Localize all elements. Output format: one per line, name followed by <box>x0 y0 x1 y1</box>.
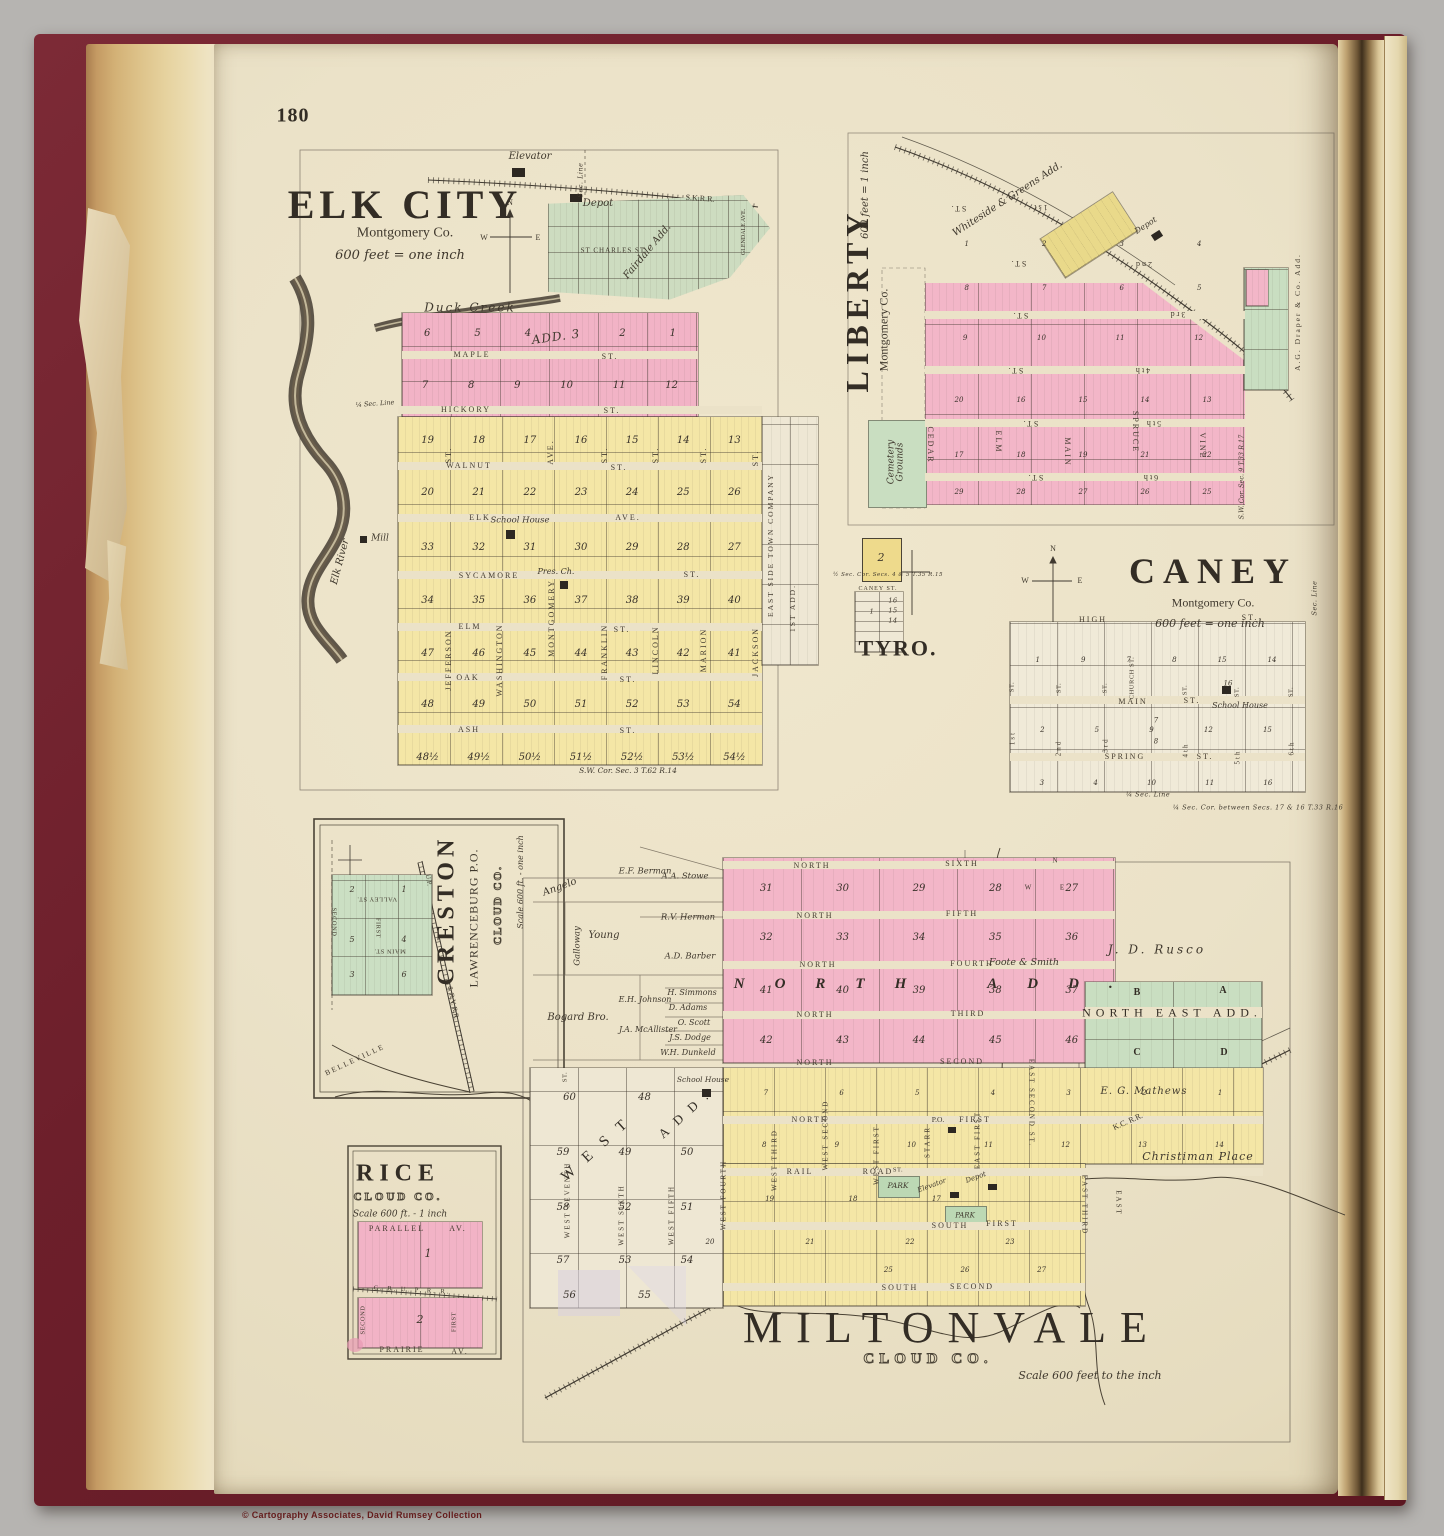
street-south-second-suffix: SECOND <box>950 1283 994 1291</box>
block-number: 9 <box>1149 726 1153 734</box>
block-number: 36 <box>1065 932 1078 943</box>
street-fragment: ST. <box>1235 687 1242 697</box>
street-rail-road: RAIL <box>787 1168 814 1176</box>
block-number: 4 <box>991 1089 995 1097</box>
rice-scale: Scale 600 ft. - 1 inch <box>353 1210 447 1219</box>
creston-up-rr-label: U.P. <box>423 874 432 887</box>
compass-e-label: E <box>536 234 541 242</box>
block-row: 2016151413 <box>928 393 1238 407</box>
owner-foote: Foote & Smith <box>989 958 1059 968</box>
block-number: 2 <box>1040 726 1044 734</box>
street-maple: MAPLE <box>453 351 490 359</box>
block-number: 15 <box>1218 656 1227 664</box>
block-number: 1 <box>1036 656 1040 664</box>
block-number: 19 <box>1079 451 1088 459</box>
owner-young: Young <box>588 931 619 942</box>
tyro-lot: 14 <box>888 618 897 625</box>
block-number: 40 <box>836 985 849 996</box>
street-gap <box>723 911 1115 919</box>
street-gap <box>925 311 1245 319</box>
street-spruce: SPRUCE <box>1131 411 1139 453</box>
block-number: 6 <box>839 1089 843 1097</box>
tyro-block2-number: 2 <box>878 552 885 564</box>
block-number: 7 <box>1127 656 1131 664</box>
block-number: 21 <box>806 1238 815 1246</box>
north-east-add-label: NORTH EAST ADD. <box>1082 1007 1262 1020</box>
block-number: 25 <box>884 1266 893 1274</box>
street-east-second: EAST SECOND ST. <box>1027 1059 1034 1147</box>
street-fragment: ST. <box>652 447 660 464</box>
block-number: 34 <box>421 595 434 606</box>
street-fragment: ST. <box>700 447 708 464</box>
block-row: 33323130292827 <box>402 540 760 554</box>
street-west-sixth: WEST SIXTH <box>618 1184 625 1245</box>
block-number: 39 <box>913 985 926 996</box>
street-hickory: HICKORY <box>441 406 491 414</box>
block-number: 1 <box>401 886 406 894</box>
block-number: 32 <box>472 542 485 553</box>
block-number: 34 <box>913 932 926 943</box>
street-ash: ASH <box>458 726 480 734</box>
block-number: 13 <box>728 435 741 446</box>
caney-school-label: School House <box>1212 702 1268 710</box>
street-2nd-suffix: ST. <box>1010 259 1027 267</box>
tyro-lot: 1 <box>870 609 875 616</box>
cemetery-label: Cemetery Grounds <box>888 440 907 484</box>
compass-n-label: N <box>507 199 513 207</box>
block-number: 48 <box>638 1092 651 1103</box>
street-fragment: ST. <box>601 447 609 464</box>
creston-plat <box>332 875 432 995</box>
block-number: 2 <box>1042 240 1046 248</box>
block-number: 3 <box>349 971 354 979</box>
block-number: 14 <box>1215 1141 1224 1149</box>
block-number: 47 <box>421 648 434 659</box>
elkcity-corner-note: S.W. Cor. Sec. 3 T.62 R.14 <box>579 767 677 775</box>
block-number: 52 <box>619 1202 632 1213</box>
street-1st-suffix: ST. <box>950 204 967 212</box>
block-number: 13 <box>1138 1141 1147 1149</box>
block-number: 5 <box>1197 284 1201 292</box>
miltonvale-scale: Scale 600 feet to the inch <box>1018 1370 1161 1382</box>
street-fragment: ST. <box>563 1072 570 1082</box>
block-number: 4 <box>1093 779 1097 787</box>
street-oak: OAK <box>456 674 479 682</box>
block-number: 19 <box>765 1195 774 1203</box>
block-number: 7 <box>422 380 428 391</box>
block-number: 27 <box>1079 488 1088 496</box>
liberty-scale: 600 feet = 1 inch <box>861 151 872 239</box>
duck-creek-label: Duck Creek <box>424 302 516 315</box>
rice-county: CLOUD CO. <box>354 1192 443 1204</box>
street-gap <box>723 1222 1085 1230</box>
block-number: 20 <box>706 1238 715 1246</box>
block-row: 594950 <box>532 1145 718 1159</box>
street-second-creston: SECOND <box>330 907 337 936</box>
tyro-title: TYRO. <box>858 636 937 659</box>
christiman-place-label: Christiman Place <box>1142 1151 1254 1163</box>
pres-church-label: Pres. Ch. <box>538 568 575 576</box>
street-west-second: WEST SECOND <box>822 1100 829 1171</box>
street-spring: SPRING <box>1105 753 1145 761</box>
block-number: 41 <box>728 648 741 659</box>
block-number: 16 <box>1224 680 1233 687</box>
block-number: 24 <box>626 487 639 498</box>
creston-compass <box>338 845 362 875</box>
block-row: 7654321 <box>728 1086 1258 1100</box>
block-number: 16 <box>1017 396 1026 404</box>
block-number: 6 <box>1120 284 1124 292</box>
street-4th-suffix: ST. <box>1007 366 1024 374</box>
street-2nd-caney: 2nd <box>1055 740 1062 757</box>
tyro-lot: 15 <box>888 608 897 615</box>
street-5th-suffix: ST. <box>1022 419 1039 427</box>
elkcity-title: ELK CITY <box>288 184 523 226</box>
ne-block-d: D <box>1220 1048 1227 1059</box>
block-number: 29 <box>626 542 639 553</box>
page-number: 180 <box>277 106 310 127</box>
street-3rd: 3rd <box>1169 310 1186 318</box>
block-number: 12 <box>1204 726 1213 734</box>
block-number: 52½ <box>621 752 643 763</box>
street-4th-caney: 4th <box>1182 743 1189 758</box>
street-north-second-suffix: SECOND <box>940 1058 984 1066</box>
compass-n-label: N <box>1050 545 1056 553</box>
block-row: 65421 <box>402 326 698 340</box>
block-number: 5 <box>349 936 354 944</box>
creston-subtitle: LAWRENCEBURG P.O. <box>468 848 481 987</box>
block-number: 53 <box>677 699 690 710</box>
park-label: PARK <box>887 1182 908 1190</box>
street-prairie-suffix: AV. <box>451 1348 469 1356</box>
street-jefferson: JEFFERSON <box>445 629 453 690</box>
tyro-corner-note: ½ Sec. Cor. Secs. 4 & 5 T.35 R.15 <box>833 573 943 579</box>
street-valley: VALLEY ST. <box>357 895 397 902</box>
block-number: 4 <box>525 328 531 339</box>
street-elm-suffix: ST. <box>614 626 631 634</box>
street-6th-caney: 6th <box>1288 741 1295 756</box>
block-number: 53½ <box>672 752 694 763</box>
street-5th-caney: 5th <box>1234 750 1241 765</box>
liberty-corner-note: S.W. Cor. Sec. 9 T.33 R.17 <box>1239 435 1246 520</box>
street-north-sixth-suffix: SIXTH <box>945 860 979 868</box>
block-row: 19181716151413 <box>402 433 760 447</box>
block-number: 31 <box>760 883 773 894</box>
street-gap <box>925 473 1245 481</box>
owner-herman: R.V. Herman <box>661 914 715 923</box>
block-number: 31 <box>523 542 536 553</box>
block-number: 32 <box>760 932 773 943</box>
block-number: 3 <box>1040 779 1044 787</box>
block-row: 47464544434241 <box>402 646 760 660</box>
block-number: 8 <box>468 380 474 391</box>
block-number: 33 <box>836 932 849 943</box>
street-south-second: SOUTH <box>882 1284 919 1292</box>
street-north-fourth: NORTH <box>799 961 836 969</box>
caney-title: CANEY <box>1129 553 1297 591</box>
miltonvale-school-label: School House <box>677 1076 729 1084</box>
block-number: 11 <box>613 380 626 391</box>
block-number: 8 <box>965 284 969 292</box>
post-office-label: P.O. <box>932 1116 945 1124</box>
owner-scott: O. Scott <box>678 1019 710 1027</box>
street-caney-st: CANEY ST. <box>859 586 898 592</box>
first-add-label: 1ST ADD. <box>789 584 797 632</box>
block-number: 6 <box>401 971 406 979</box>
block-number: 17 <box>932 1195 941 1203</box>
block-number: 7 <box>1154 717 1158 724</box>
block-number: 2 <box>619 328 625 339</box>
street-high-suffix: ST. <box>1242 614 1259 622</box>
block-row: 20212223 <box>660 1235 1060 1249</box>
street-elk: ELK <box>469 514 491 522</box>
street-elm: ELM <box>459 623 482 631</box>
street-east-third: EAST THIRD <box>1080 1175 1087 1235</box>
caney-compass <box>1032 557 1072 625</box>
block-number: 57 <box>557 1255 570 1266</box>
block-row: 48½49½50½51½52½53½54½ <box>402 750 760 764</box>
block-number: 33 <box>421 542 434 553</box>
block-number: 10 <box>907 1141 916 1149</box>
block-number: 11 <box>1116 334 1125 342</box>
block-number: 10 <box>1147 779 1156 787</box>
block-row: 2591215 <box>1015 723 1297 737</box>
block-number: 2 <box>349 886 354 894</box>
block-number: 56 <box>563 1290 576 1301</box>
street-6th-suffix: ST. <box>1027 473 1044 481</box>
block-number: 30 <box>836 883 849 894</box>
street-elk-suffix: AVE. <box>615 514 640 522</box>
block-number: 27 <box>728 542 741 553</box>
block-number: 51 <box>681 1202 694 1213</box>
street-gap <box>398 725 762 733</box>
street-prairie: PRAIRIE <box>379 1346 424 1354</box>
block-row: 575354 <box>532 1253 718 1267</box>
street-north-third-suffix: THIRD <box>951 1010 985 1018</box>
street-fragment: ST. <box>1010 682 1017 692</box>
street-south-first-suffix: FIRST <box>986 1220 1018 1228</box>
rice-pink-smudge <box>347 1338 363 1352</box>
caney-county: Montgomery Co. <box>1172 597 1255 610</box>
street-fragment: ST. <box>1289 687 1296 697</box>
street-fragment: ST. <box>1057 683 1064 693</box>
block-number: 22 <box>523 487 536 498</box>
block-number: 52 <box>626 699 639 710</box>
street-3rd-suffix: ST. <box>1012 311 1029 319</box>
school-house-building <box>506 530 515 539</box>
block-number: 38 <box>989 985 1002 996</box>
block-number: 20 <box>955 396 964 404</box>
block-number: 11 <box>984 1141 993 1149</box>
block-number: 14 <box>1141 396 1150 404</box>
street-north-fifth-suffix: FIFTH <box>946 910 978 918</box>
street-4th: 4th <box>1134 366 1150 374</box>
block-row: 3130292827 <box>728 881 1110 895</box>
block-row: 19781514 <box>1015 653 1297 667</box>
block-row: 6048 <box>532 1090 682 1104</box>
block-number: 7 <box>764 1089 768 1097</box>
block-number: 8 <box>1172 656 1176 664</box>
street-washington: WASHINGTON <box>496 623 504 696</box>
ne-block-c: C <box>1133 1048 1140 1059</box>
street-second-rice: SECOND <box>361 1305 368 1334</box>
miltonvale-title: MILTONVALE <box>743 1305 1161 1351</box>
block-number: 25 <box>1203 488 1212 496</box>
creston-title: CRESTON <box>434 835 459 986</box>
block-number: 54 <box>681 1255 694 1266</box>
block-number: 17 <box>523 435 536 446</box>
block-number: 26 <box>728 487 741 498</box>
street-fragment: ST. <box>1103 683 1110 693</box>
street-main-caney-suffix: ST. <box>1184 697 1201 705</box>
glendale-ave-street: GLENDALE AVE. <box>741 209 747 255</box>
block-number: 29 <box>913 883 926 894</box>
street-north-sixth: NORTH <box>793 862 830 870</box>
copyright-line: © Cartography Associates, David Rumsey C… <box>242 1510 482 1520</box>
compass-n-label: N <box>1052 857 1057 864</box>
street-south-first: SOUTH <box>932 1222 969 1230</box>
creston-county: CLOUD CO. <box>493 865 505 945</box>
street-gap <box>723 1011 1115 1019</box>
street-fragment: ST. <box>752 450 760 467</box>
elkcity-secline-label: Sec. Line <box>578 162 585 197</box>
block-number: 44 <box>913 1035 926 1046</box>
block-number: 28 <box>989 883 1002 894</box>
block-number: 35 <box>472 595 485 606</box>
street-first-rice: FIRST <box>452 1312 459 1332</box>
block-number: 15 <box>626 435 639 446</box>
block-number: 41 <box>760 985 773 996</box>
compass-w-label: W <box>1021 577 1029 585</box>
block-number: 49½ <box>468 752 490 763</box>
block-number: 18 <box>472 435 485 446</box>
street-hickory-suffix: ST. <box>604 407 621 415</box>
street-north-fourth-suffix: FOURTH <box>950 960 994 968</box>
block-number: 26 <box>1141 488 1150 496</box>
block-number: 12 <box>1194 334 1203 342</box>
ne-block-b: B <box>1134 988 1141 999</box>
block-number: 4 <box>1197 240 1201 248</box>
block-number: 1 <box>425 1248 432 1260</box>
park-st-label: ST. <box>893 1168 903 1175</box>
street-ash-suffix: ST. <box>620 727 637 735</box>
block-number: 46 <box>472 648 485 659</box>
park-label-2: PARK <box>955 1212 975 1219</box>
block-number: 5 <box>474 328 480 339</box>
pres-church-building <box>560 581 568 589</box>
block-number: 30 <box>575 542 588 553</box>
block-number: 18 <box>1017 451 1026 459</box>
block-row: 8765 <box>928 281 1238 295</box>
block-number: 3 <box>1066 1089 1070 1097</box>
street-north-third: NORTH <box>796 1011 833 1019</box>
block-number: 15 <box>1263 726 1272 734</box>
elevator-label: Elevator <box>509 152 552 163</box>
owner-barber: A.D. Barber <box>665 953 716 962</box>
elkcity-county: Montgomery Co. <box>357 227 453 242</box>
block-number: 46 <box>1065 1035 1078 1046</box>
owner-rusco: J. D. Rusco <box>1108 944 1206 957</box>
block-number: 9 <box>835 1141 839 1149</box>
miltonvale-northeast-add-plat <box>1085 982 1262 1070</box>
block-row: 4140393837 <box>728 983 1110 997</box>
ne-block-a: A <box>1219 986 1226 997</box>
block-number: 1 <box>965 240 969 248</box>
compass-e-label: E <box>1078 577 1083 585</box>
post-office-building <box>948 1127 956 1133</box>
block-number: 53 <box>619 1255 632 1266</box>
mill-building <box>360 536 367 543</box>
block-number: 60 <box>563 1092 576 1103</box>
block-number: 1 <box>1218 1089 1222 1097</box>
block-number: 6 <box>424 328 430 339</box>
street-gap <box>925 419 1245 427</box>
block-number: 12 <box>665 380 678 391</box>
block-number: 12 <box>1061 1141 1070 1149</box>
owner-bogard: Bogard Bro. <box>547 1013 608 1024</box>
creston-belleville-line <box>332 1045 470 1092</box>
street-sycamore-suffix: ST. <box>684 571 701 579</box>
owner-galloway: Galloway <box>574 926 583 966</box>
block-number: 54½ <box>723 752 745 763</box>
street-walnut-suffix: ST. <box>611 464 628 472</box>
compass-w-label: W <box>480 234 488 242</box>
block-row: 789101112 <box>402 378 698 392</box>
owner-simmons: H. Simmons <box>667 989 716 997</box>
miltonvale-county: CLOUD CO. <box>863 1352 992 1368</box>
block-number: 29 <box>955 488 964 496</box>
block-number: 2 <box>1142 1089 1146 1097</box>
street-gap <box>398 571 762 579</box>
street-gap <box>402 351 698 359</box>
block-number: 38 <box>626 595 639 606</box>
street-west-fourth: WEST FOURTH <box>720 1160 727 1230</box>
rice-title: RICE <box>356 1161 440 1186</box>
block-number: 11 <box>1205 779 1214 787</box>
block-row: 9101112 <box>928 331 1238 345</box>
block-number: 2 <box>417 1314 424 1326</box>
block-number: 27 <box>1037 1266 1046 1274</box>
block-number: 37 <box>575 595 588 606</box>
block-number: 23 <box>575 487 588 498</box>
block-number: 5 <box>915 1089 919 1097</box>
street-first-creston: FIRST <box>374 918 381 938</box>
block-number: 9 <box>963 334 967 342</box>
street-oak-suffix: ST. <box>620 676 637 684</box>
block-number: 39 <box>677 595 690 606</box>
block-row: 48495051525354 <box>402 697 760 711</box>
block-number: 17 <box>955 451 964 459</box>
block-number: 48 <box>421 699 434 710</box>
block-number: 9 <box>1081 656 1085 664</box>
block-number: 35 <box>989 932 1002 943</box>
block-number: 5 <box>1095 726 1099 734</box>
street-parallel: PARALLEL <box>369 1225 425 1233</box>
owner-johnson: E.H. Johnson <box>619 996 672 1004</box>
block-number: 16 <box>1263 779 1272 787</box>
block-number: 49 <box>619 1147 632 1158</box>
street-parallel-suffix: AV. <box>449 1225 467 1233</box>
block-number: 50½ <box>519 752 541 763</box>
mill-label: Mill <box>371 534 389 543</box>
block-row: 191817 <box>728 1192 978 1206</box>
block-number: 28 <box>677 542 690 553</box>
block-number: 25 <box>677 487 690 498</box>
block-number: 22 <box>1203 451 1212 459</box>
block-number: 10 <box>1037 334 1046 342</box>
block-number: 14 <box>1268 656 1277 664</box>
block-row: 1718192122 <box>928 448 1238 462</box>
